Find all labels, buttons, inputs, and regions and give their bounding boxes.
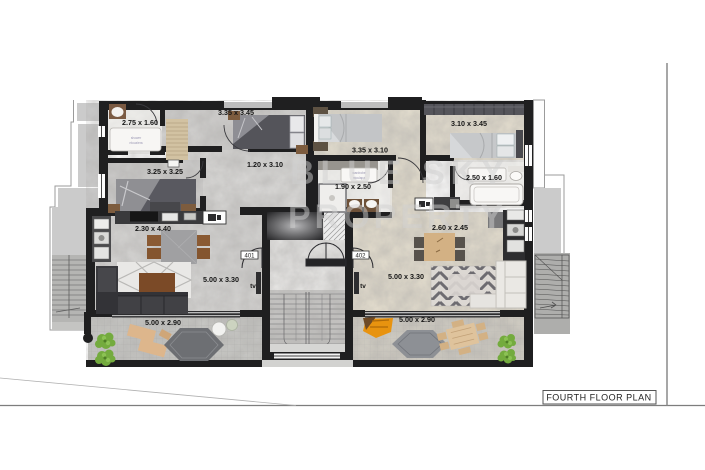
svg-text:5.00 x 2.90: 5.00 x 2.90 (399, 315, 435, 324)
svg-text:2.75 x 1.60: 2.75 x 1.60 (122, 118, 158, 127)
svg-text:3.25 x 3.25: 3.25 x 3.25 (147, 167, 183, 176)
svg-text:1.20 x 3.10: 1.20 x 3.10 (247, 160, 283, 169)
svg-text:3.10 x 3.45: 3.10 x 3.45 (451, 119, 487, 128)
svg-text:3.35 x 3.10: 3.35 x 3.10 (352, 146, 388, 155)
svg-text:402: 402 (355, 254, 366, 260)
svg-text:ntouziera: ntouziera (129, 141, 142, 145)
svg-text:401: 401 (244, 254, 255, 260)
svg-text:FOURTH FLOOR PLAN: FOURTH FLOOR PLAN (546, 393, 651, 403)
svg-text:5.00 x 2.90: 5.00 x 2.90 (145, 318, 181, 327)
svg-text:3.35 x 3.45: 3.35 x 3.45 (218, 108, 254, 117)
svg-text:5.00 x 3.30: 5.00 x 3.30 (388, 272, 424, 281)
svg-text:tv: tv (250, 283, 256, 290)
svg-text:1.90 x 2.50: 1.90 x 2.50 (335, 182, 371, 191)
svg-text:shower: shower (131, 136, 142, 140)
svg-text:2.50 x 1.60: 2.50 x 1.60 (466, 173, 502, 182)
svg-text:5.00 x 3.30: 5.00 x 3.30 (203, 275, 239, 284)
svg-text:PROPERTY: PROPERTY (288, 198, 507, 236)
svg-text:2.60 x 2.45: 2.60 x 2.45 (432, 223, 468, 232)
svg-text:2.30 x 4.40: 2.30 x 4.40 (135, 224, 171, 233)
svg-text:tv: tv (360, 283, 366, 290)
